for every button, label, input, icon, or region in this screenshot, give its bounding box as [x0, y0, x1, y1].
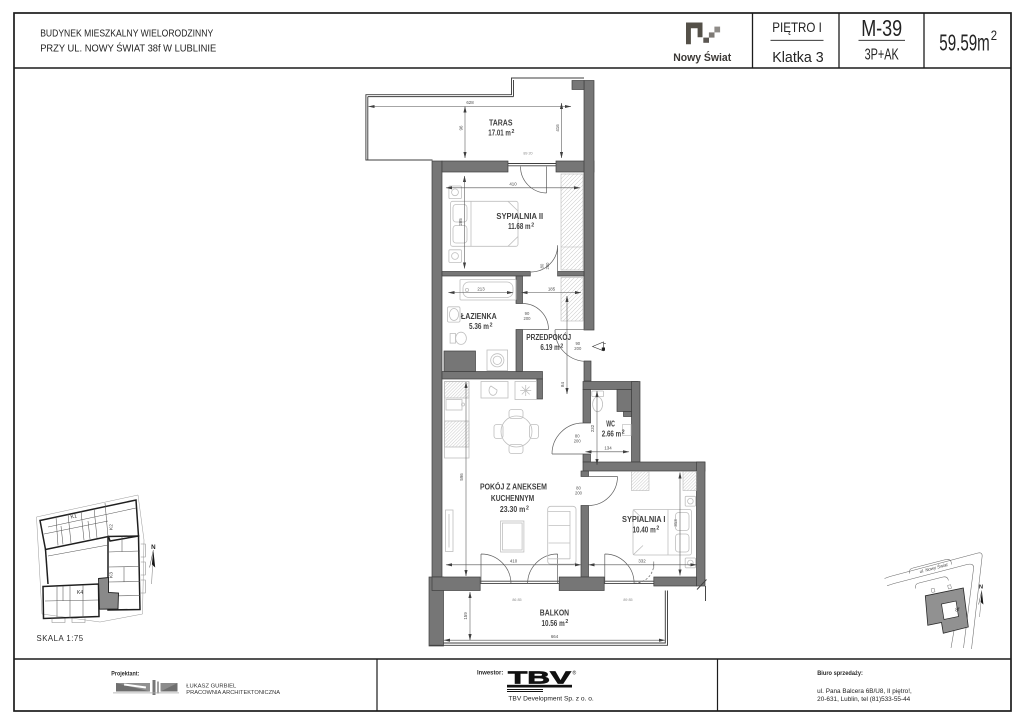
svg-text:2: 2	[565, 619, 568, 625]
svg-text:185: 185	[548, 286, 556, 291]
svg-text:ŁUKASZ GURBIEL: ŁUKASZ GURBIEL	[186, 683, 237, 689]
svg-text:KUCHENNYM: KUCHENNYM	[491, 493, 534, 503]
svg-text:N: N	[151, 544, 156, 551]
svg-text:PIĘTRO I: PIĘTRO I	[772, 19, 822, 35]
svg-text:ul. Pana Balcera 6B/U8, II pię: ul. Pana Balcera 6B/U8, II piętro!,	[817, 688, 912, 695]
svg-text:664: 664	[551, 634, 559, 639]
svg-text:®: ®	[573, 670, 577, 677]
svg-text:2: 2	[512, 129, 515, 135]
svg-text:410: 410	[509, 182, 517, 187]
svg-text:2: 2	[490, 323, 493, 329]
svg-text:59.59m: 59.59m	[939, 29, 990, 55]
svg-text:ŁAZIENKA: ŁAZIENKA	[461, 311, 497, 321]
svg-text:17.01 m: 17.01 m	[488, 128, 511, 138]
svg-text:N: N	[979, 585, 983, 591]
svg-text:BALKON: BALKON	[540, 607, 569, 617]
svg-text:6.19 m: 6.19 m	[540, 342, 560, 352]
svg-text:POKÓJ Z ANEKSEM: POKÓJ Z ANEKSEM	[480, 480, 547, 491]
svg-text:PRACOWNIA ARCHITEKTONICZNA: PRACOWNIA ARCHITEKTONICZNA	[186, 690, 280, 696]
svg-text:134: 134	[604, 446, 612, 451]
svg-text:TARAS: TARAS	[489, 117, 513, 127]
svg-text:BUDYNEK MIESZKALNY WIELORODZIN: BUDYNEK MIESZKALNY WIELORODZINNY	[40, 29, 213, 40]
svg-text:2: 2	[656, 526, 659, 532]
svg-text:WC: WC	[606, 418, 615, 428]
svg-text:2: 2	[526, 505, 529, 511]
svg-text:K4: K4	[77, 590, 83, 596]
svg-text:232: 232	[590, 424, 595, 432]
svg-text:200: 200	[574, 438, 582, 443]
svg-text:3P+AK: 3P+AK	[865, 47, 899, 64]
svg-text:2: 2	[991, 27, 997, 43]
svg-text:10.56 m: 10.56 m	[542, 618, 565, 628]
svg-text:410: 410	[510, 559, 518, 564]
svg-text:213: 213	[477, 286, 485, 291]
svg-text:5.36 m: 5.36 m	[469, 321, 489, 331]
svg-text:596: 596	[459, 473, 464, 481]
svg-text:K3: K3	[109, 572, 115, 578]
svg-text:89 20: 89 20	[523, 152, 532, 156]
svg-text:Inwestor:: Inwestor:	[477, 669, 503, 676]
svg-text:80: 80	[540, 263, 545, 268]
svg-text:TBV: TBV	[508, 667, 572, 687]
svg-text:285: 285	[458, 218, 463, 226]
svg-text:89 85: 89 85	[623, 598, 632, 602]
svg-text:313: 313	[673, 519, 678, 527]
svg-text:200: 200	[545, 262, 550, 270]
svg-text:628: 628	[466, 100, 474, 105]
svg-text:2: 2	[531, 222, 534, 228]
svg-text:PRZY UL. NOWY ŚWIAT 38f W LUBL: PRZY UL. NOWY ŚWIAT 38f W LUBLINIE	[40, 42, 216, 55]
svg-text:200: 200	[524, 316, 532, 321]
svg-text:PRZEDPOKÓJ: PRZEDPOKÓJ	[526, 331, 571, 342]
svg-text:Klatka 3: Klatka 3	[772, 49, 823, 66]
svg-text:10.40 m: 10.40 m	[633, 524, 656, 534]
svg-text:159: 159	[463, 612, 468, 620]
svg-text:SYPIALNIA II: SYPIALNIA II	[496, 211, 543, 221]
svg-text:2: 2	[560, 344, 563, 350]
svg-text:84: 84	[560, 382, 565, 387]
svg-text:332: 332	[638, 559, 646, 564]
svg-text:K2: K2	[109, 524, 115, 530]
svg-text:Projektant:: Projektant:	[111, 670, 139, 677]
svg-text:23.30 m: 23.30 m	[500, 504, 526, 514]
svg-text:86 85: 86 85	[512, 598, 521, 602]
svg-text:2: 2	[622, 430, 625, 436]
svg-text:M-39: M-39	[861, 15, 902, 41]
svg-text:SYPIALNIA I: SYPIALNIA I	[622, 514, 666, 524]
svg-text:2.66 m: 2.66 m	[602, 428, 622, 438]
svg-text:200: 200	[575, 490, 583, 495]
svg-text:ul. Nowy Świat: ul. Nowy Świat	[919, 562, 949, 574]
svg-text:200: 200	[574, 346, 582, 351]
svg-text:Nowy Świat: Nowy Świat	[673, 51, 731, 64]
svg-text:416: 416	[555, 124, 560, 132]
svg-text:TBV Development Sp. z o. o.: TBV Development Sp. z o. o.	[508, 696, 594, 703]
svg-text:SKALA 1:75: SKALA 1:75	[37, 634, 84, 643]
svg-text:11.68 m: 11.68 m	[508, 221, 531, 231]
svg-text:Biuro sprzedaży:: Biuro sprzedaży:	[817, 670, 863, 677]
svg-text:96: 96	[458, 125, 463, 130]
svg-text:20-631, Lublin, tel (81)533-55: 20-631, Lublin, tel (81)533-55-44	[817, 696, 911, 703]
svg-text:K1: K1	[70, 513, 78, 520]
